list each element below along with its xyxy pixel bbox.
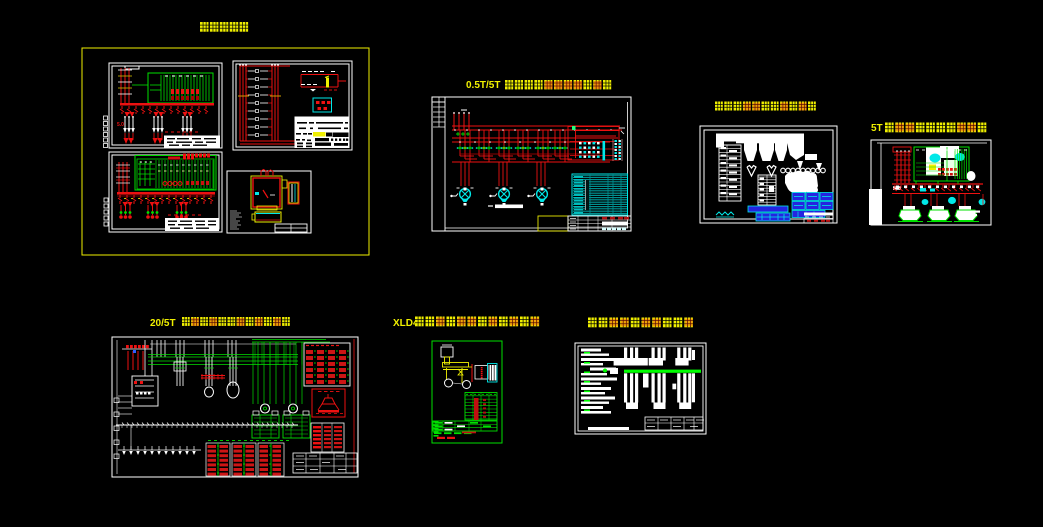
svg-text:0.5T/5T: 0.5T/5T — [466, 80, 500, 91]
svg-text:5T: 5T — [871, 123, 883, 134]
svg-text:20/5T: 20/5T — [150, 318, 176, 329]
svg-text:5.0: 5.0 — [117, 122, 124, 128]
